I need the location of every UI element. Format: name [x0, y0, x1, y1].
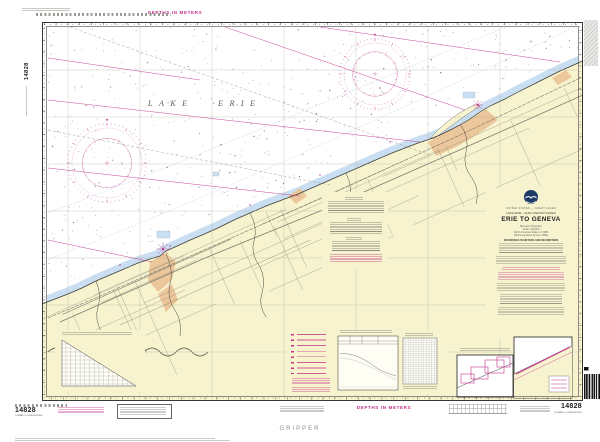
table-caption	[403, 386, 437, 390]
inset-harbor	[514, 337, 572, 398]
loran-note-bottom-right: (LORAN-C OVERPRINTED)	[544, 412, 582, 414]
chart-title: ERIE TO GENEVA	[487, 216, 575, 223]
table-caption	[405, 333, 433, 336]
top-left-smallprint	[22, 8, 70, 11]
legend-symbols	[291, 334, 294, 374]
gripper-label: GRIPPER	[268, 426, 332, 432]
title-paragraph	[497, 283, 565, 292]
chart-number-bottom-right: 14828	[548, 403, 582, 410]
chart-number-bottom-left: 14828	[15, 407, 36, 414]
boxed-note-text	[120, 407, 166, 415]
title-paragraph	[499, 243, 563, 253]
title-caution-paragraph	[498, 272, 564, 280]
note-paragraph	[332, 241, 380, 251]
legend-labels	[297, 334, 326, 374]
tide-table	[403, 338, 437, 384]
diagram-caption	[340, 330, 392, 334]
top-left-dash-strip	[36, 13, 171, 17]
noaa-logo	[524, 190, 538, 204]
source-diagram-box	[338, 336, 398, 390]
title-region: LAKE ERIE · OHIO–PENNSYLVANIA	[487, 211, 575, 215]
legend-note-magenta	[292, 378, 330, 385]
note-heading	[347, 218, 361, 221]
triangle-table-caption	[62, 332, 132, 336]
title-paragraph	[500, 294, 562, 304]
note-heading	[346, 237, 362, 240]
note-paragraph	[328, 201, 384, 215]
nautical-chart-sheet: ★★	[0, 0, 600, 442]
inset-caption	[460, 348, 510, 352]
title-caution-magenta	[502, 267, 560, 270]
note-heading	[345, 197, 363, 200]
depths-in-meters-bottom: DEPTHS IN METERS	[347, 405, 421, 410]
binding-hatch	[584, 20, 598, 66]
title-soundings-note: SOUNDINGS IN METERS AND DECIMETERS	[487, 239, 575, 242]
bottom-magenta-note	[58, 407, 104, 413]
title-nation: UNITED STATES — GREAT LAKES	[487, 207, 575, 210]
loran-note-bottom-left: (LORAN-C OVERPRINTED)	[15, 415, 43, 417]
correction-grid	[449, 404, 507, 414]
title-paragraph	[496, 256, 566, 265]
title-paragraph	[498, 307, 564, 315]
lake-erie-label: LAKE ERIE	[148, 99, 261, 108]
title-datum2: (World Geodetic System 1984)	[487, 234, 575, 237]
chart-number-left-rotated: 14828	[24, 62, 30, 80]
note-paragraph-magenta	[330, 254, 382, 262]
legend-note-magenta	[292, 387, 330, 392]
title-block: UNITED STATES — GREAT LAKES LAKE ERIE · …	[487, 207, 575, 315]
svg-text:★: ★	[105, 117, 109, 122]
inset-chart-index	[457, 355, 513, 397]
footer-smallprint	[15, 438, 215, 440]
svg-text:★: ★	[373, 32, 377, 37]
bottom-boxed-note	[117, 404, 172, 419]
left-margin-smallprint	[26, 86, 28, 116]
note-paragraph	[330, 222, 382, 234]
certification-smallprint	[280, 406, 324, 413]
